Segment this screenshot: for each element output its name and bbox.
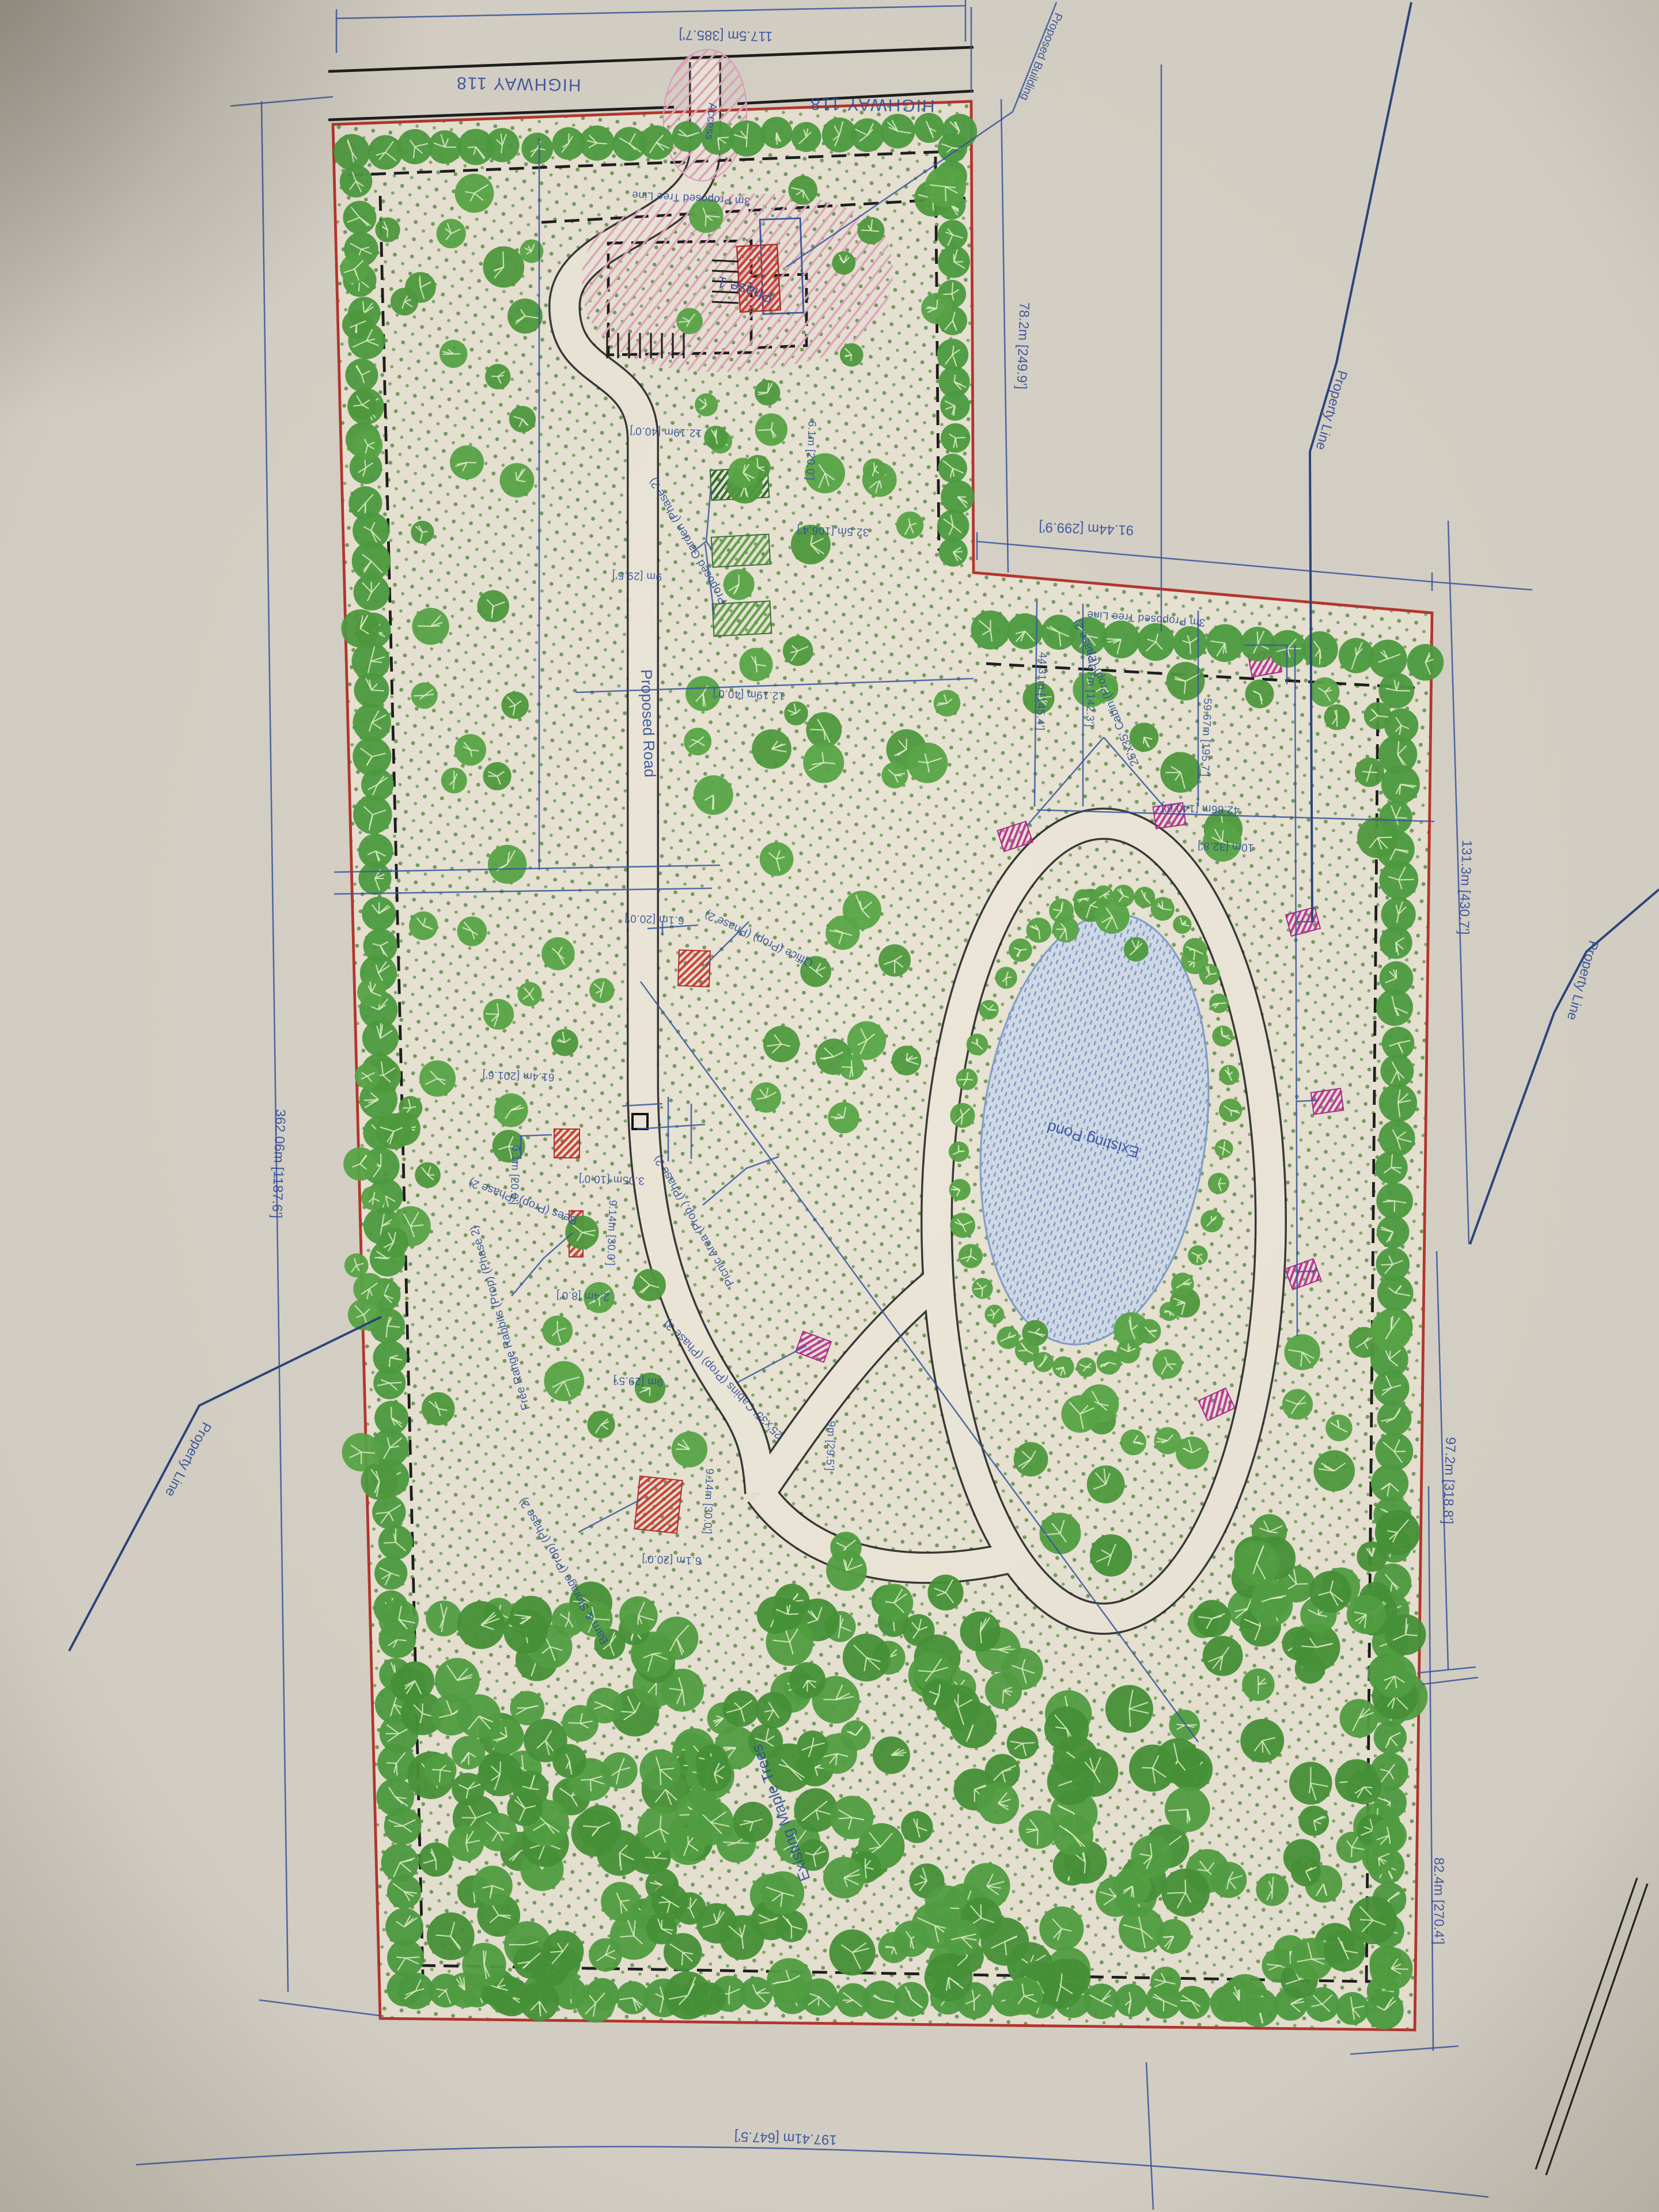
dim-notch: 91.44m [299.9'] (1039, 519, 1134, 538)
dim-3m: 3.05m [10.0'] (578, 1172, 645, 1187)
dim-east-upper: 131.3m [430.7'] (1456, 839, 1475, 935)
dim-9m-2: 9.14m [30.0'] (701, 1468, 715, 1535)
dim-12m-1: 12.19m [40.0'] (630, 425, 702, 439)
dim-top: 117.5m [385.7'] (679, 27, 772, 44)
dim-10m: 10m [32.8'] (1198, 839, 1254, 853)
garden-plot (711, 534, 771, 567)
dim-6m-3: 6.1m [20.0'] (507, 1145, 522, 1205)
dim-east-mid: 97.2m [318.8'] (1440, 1437, 1458, 1524)
dim-6m-4: 6.1m [20.0'] (804, 421, 818, 480)
cabin-footprint (1311, 1089, 1344, 1115)
photo-of-site-plan: 117.5m [385.7'] HIGHWAY 118 HIGHWAY 118 … (0, 0, 1659, 2212)
dim-32m: 32.5m [106.4'] (797, 524, 869, 538)
dim-strip-east: 78.2m [249.9'] (1013, 302, 1032, 389)
office-footprint (678, 950, 710, 987)
dim-12m-2: 12.19m [40.0'] (713, 687, 785, 702)
dim-east-lower: 82.4m [270.4'] (1431, 1857, 1446, 1944)
dim-roadw-1: 9m [29.5'] (612, 569, 662, 582)
dim-61m: 61.4m [201.6'] (482, 1069, 555, 1083)
dim-9m-1: 9.14m [30.0'] (604, 1200, 619, 1266)
bees-structure (554, 1129, 579, 1158)
site-plan-sheet: 117.5m [385.7'] HIGHWAY 118 HIGHWAY 118 … (0, 0, 1659, 2212)
dim-2m: 2.4m [8.0'] (556, 1289, 609, 1302)
dim-roadw-3: 9m [29.5'] (823, 1421, 837, 1471)
garden-plot (713, 601, 772, 636)
barn-storage-footprint (634, 1476, 682, 1533)
label-highway-2: HIGHWAY 118 (809, 94, 935, 115)
label-highway-1: HIGHWAY 118 (456, 73, 581, 94)
dim-6m-2: 6.1m [20.0'] (642, 1552, 702, 1567)
dim-roadw-2: 9m [29.5'] (613, 1374, 664, 1388)
dim-6m-1: 6.1m [20.0'] (624, 912, 684, 926)
